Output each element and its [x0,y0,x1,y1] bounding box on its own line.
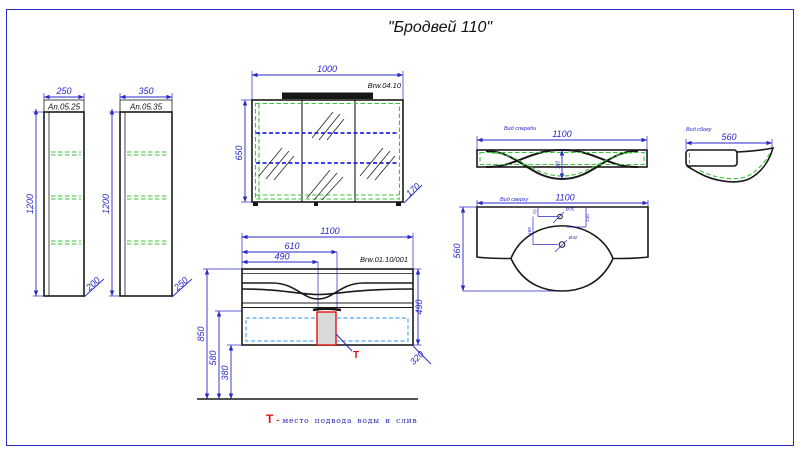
mirror-height-dim: 650 [234,145,244,160]
basin-side-view: Вид сбоку 560 [678,118,790,193]
bowl-depth-dim: 180 [556,161,562,170]
vanity-580-dim: 580 [208,350,218,365]
cab2-code: An.05.35 [129,103,163,112]
vanity-view: 1100 610 490 Brw.01.10/001 Т 490 320 850… [193,226,438,406]
svg-text:185: 185 [527,227,532,235]
vanity-610-dim: 610 [284,241,299,251]
basin-front-width-dim: 1100 [552,129,571,139]
legend: Т-место подвода воды и слив [266,410,418,428]
basin-top-width-dim: 1100 [555,193,574,203]
t-marker: Т [353,350,359,361]
vanity-code: Brw.01.10/001 [360,255,408,264]
mirror-light-fixture [282,93,373,100]
vanity-380-dim: 380 [220,365,230,380]
legend-text: место подвода воды и слив [282,416,417,425]
basin-top-depth-dim: 560 [452,243,462,258]
drawing-sheet: "Бродвей 110" 250 An.05.25 1200 [0,0,800,454]
basin-front-label: Вид спереди [504,126,536,132]
basin-top-view: Вид сверху 1100 560 Ø35 Ø42 70 130 185 [450,193,660,301]
cab1-shelves [51,152,81,244]
drawing-title: "Бродвей 110" [350,19,530,37]
legend-separator: - [273,415,282,425]
vanity-width-dim: 1100 [320,226,339,236]
svg-text:70: 70 [533,209,538,215]
svg-text:130: 130 [585,214,590,222]
basin-side-width-dim: 560 [721,132,736,142]
basin-side-label: Вид сбоку [686,127,713,133]
cab1-code: An.05.25 [47,103,81,112]
hole2-dia: Ø42 [568,235,578,240]
mirror-width-dim: 1000 [317,64,337,74]
basin-top-label: Вид сверху [500,197,529,203]
vanity-850-dim: 850 [196,326,206,341]
mirror-depth-dim: 170 [404,181,422,198]
basin-front-view: Вид спереди 1100 180 [453,118,658,193]
cab1-width-dim: 250 [55,86,71,96]
cabinet-350: 350 An.05.35 1200 250 [101,86,192,297]
mirror-hatch-marks [259,112,395,200]
hole1-dia: Ø35 [565,207,575,212]
mirror-cabinet-view: 1000 Brw.04.10 650 170 [235,58,430,213]
vanity-wave-front [242,283,413,299]
cab2-height-dim: 1200 [101,194,111,214]
mirror-shelves [256,133,399,163]
plumbing-zone-box [317,312,336,345]
vanity-490w-dim: 490 [274,252,289,262]
drawer-handle [313,309,341,310]
t-leader-line [336,334,352,351]
cab2-width-dim: 350 [138,86,153,96]
cab1-depth-dim: 200 [83,275,102,293]
cab1-height-dim: 1200 [25,194,35,214]
cab2-shelves [127,152,167,244]
tall-cabinets-view: 250 An.05.25 1200 200 350 An.05.35 [20,82,200,307]
mirror-code: Brw.04.10 [368,81,402,90]
vanity-height-dim: 490 [414,299,424,314]
cab2-depth-dim: 250 [171,275,190,293]
faucet-drain-holes: Ø35 Ø42 [553,207,578,253]
cabinet-250: 250 An.05.25 1200 200 [25,86,104,297]
vanity-depth-dim: 320 [408,349,426,367]
